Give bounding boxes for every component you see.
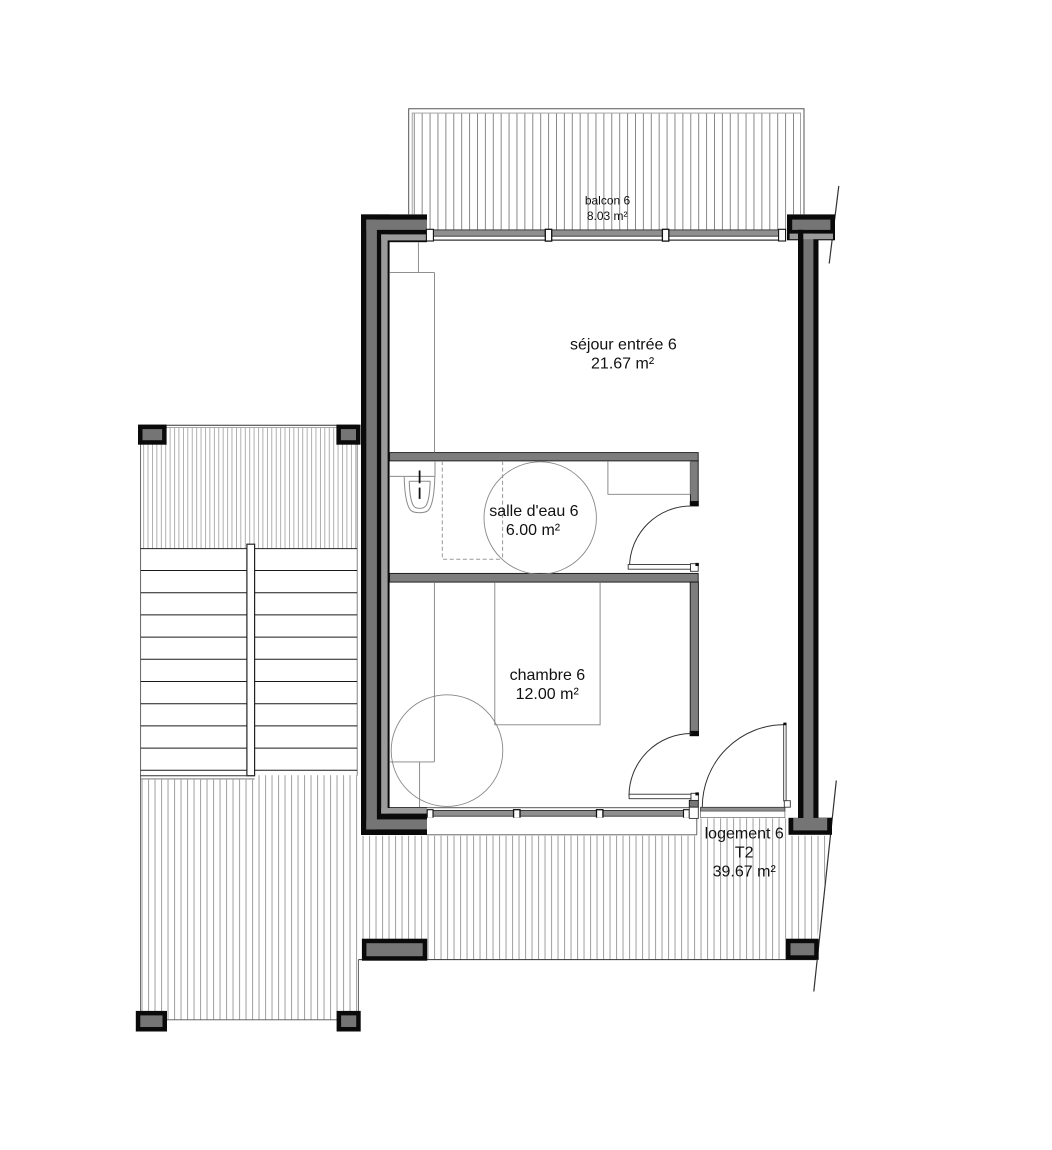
svg-text:séjour entrée 6: séjour entrée 6 [570, 336, 677, 353]
svg-text:chambre 6: chambre 6 [510, 667, 586, 684]
svg-text:39.67 m²: 39.67 m² [713, 863, 777, 880]
svg-text:balcon 6: balcon 6 [585, 194, 631, 208]
svg-text:salle d'eau 6: salle d'eau 6 [489, 503, 578, 520]
svg-text:6.00 m²: 6.00 m² [506, 522, 561, 539]
svg-text:12.00 m²: 12.00 m² [516, 686, 580, 703]
svg-text:8.03 m²: 8.03 m² [587, 209, 628, 223]
svg-text:logement 6: logement 6 [705, 825, 784, 842]
svg-text:T2: T2 [735, 845, 754, 862]
svg-text:21.67 m²: 21.67 m² [591, 356, 655, 373]
